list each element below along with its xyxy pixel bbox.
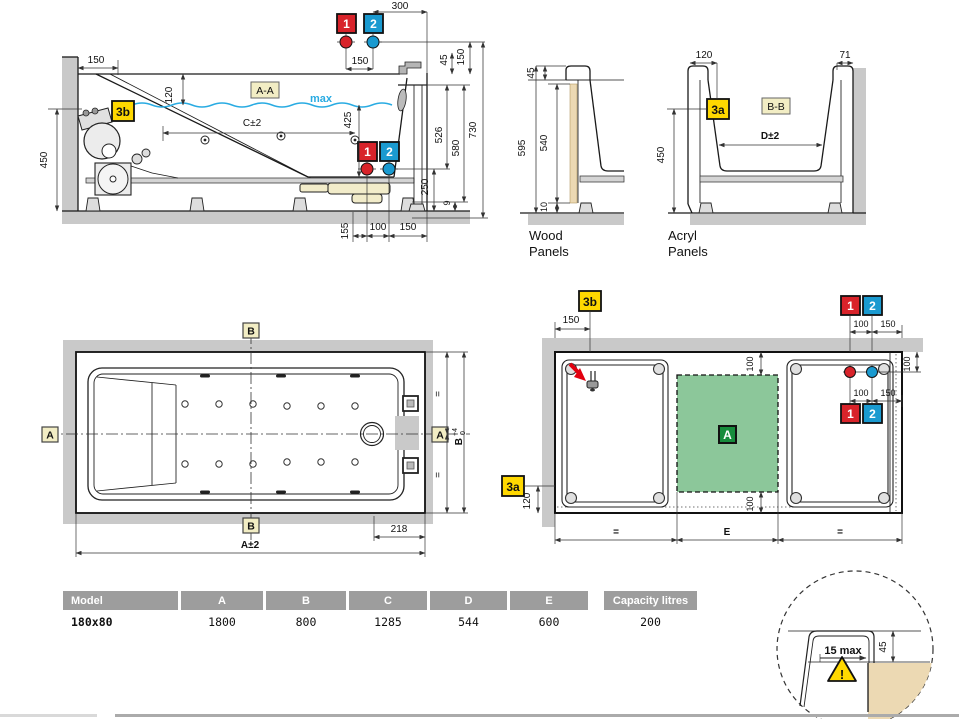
tub-plan-view: B B A A 218 A±2 = = B +4 0: [42, 323, 470, 557]
dim-10: 10: [539, 202, 549, 212]
section-aa-view: max A-A 3b 1 2 1 2 150 120 C±2: [39, 1, 488, 242]
marker-3b-install: 3b: [583, 295, 597, 309]
dim-150-supply-top: 150: [352, 56, 369, 67]
dim-150-install-1: 150: [880, 319, 895, 329]
dim-450-acryl: 450: [656, 146, 667, 163]
value-model: 180x80: [63, 610, 178, 634]
wood-panel-strip: [570, 84, 577, 203]
header-c: C: [349, 591, 427, 610]
dim-150-right: 150: [456, 48, 467, 65]
spec-table: Model A B C D E Capacity litres 180x80 1…: [63, 591, 703, 634]
dim-9: 9: [442, 200, 452, 205]
dim-100-green-top: 100: [745, 356, 755, 371]
dim-120-acryl: 120: [696, 50, 713, 61]
wall-right: [853, 68, 866, 225]
footer-strip-left: [0, 714, 97, 717]
drain-plug-icon: [587, 381, 598, 388]
technical-drawing-page: max A-A 3b 1 2 1 2 150 120 C±2: [0, 0, 959, 719]
svg-text:0: 0: [460, 431, 467, 435]
marker-3a-acryl: 3a: [711, 103, 725, 117]
value-d: 544: [430, 610, 507, 634]
dim-100-green-bottom: 100: [745, 496, 755, 511]
value-a: 1800: [181, 610, 263, 634]
dim-450-left: 450: [39, 151, 50, 168]
dim-equal-left: =: [613, 527, 619, 538]
marker-3a-install: 3a: [506, 480, 520, 494]
header-model: Model: [63, 591, 178, 610]
value-capacity: 200: [604, 610, 697, 634]
dim-45-wood: 45: [526, 67, 537, 79]
acryl-panels-view: B-B 3a 120 71 D±2 450 Acryl Panels: [656, 50, 866, 259]
header-e: E: [510, 591, 588, 610]
supply-point-symbols-top: [337, 34, 382, 50]
marker-a-area: A: [723, 428, 732, 442]
install-wall-top: [542, 338, 923, 352]
dim-100-right: 100: [902, 356, 912, 371]
header-a: A: [181, 591, 263, 610]
dim-300: 300: [392, 1, 409, 12]
drain-siphon: [300, 183, 390, 203]
wall-ledge: [868, 663, 934, 719]
wood-panels-title-1: Wood: [529, 228, 563, 243]
rim-detail-view: 15 max ! 45: [777, 571, 934, 719]
dim-150-bottom: 150: [400, 222, 417, 233]
wood-panels-view: 45 595 540 10 Wood Panels: [517, 66, 624, 259]
warning-exclamation: !: [840, 667, 844, 682]
marker-1-top: 1: [343, 17, 350, 31]
header-d: D: [430, 591, 507, 610]
value-c: 1285: [349, 610, 427, 634]
wood-panel-dimensions: 45 595 540 10: [517, 66, 570, 213]
marker-b-top: B: [247, 326, 255, 338]
acryl-panels-title-2: Panels: [668, 244, 708, 259]
dim-c: C±2: [243, 118, 262, 129]
value-b: 800: [266, 610, 346, 634]
marker-1-install-mid: 1: [847, 407, 854, 421]
header-capacity: Capacity litres: [604, 591, 697, 610]
dim-equal-top: =: [433, 391, 444, 397]
marker-b-bottom: B: [247, 521, 255, 533]
spec-table-header-row: Model A B C D E Capacity litres: [63, 591, 703, 610]
dim-equal-bottom: =: [433, 472, 444, 478]
marker-2-mid: 2: [386, 145, 393, 159]
dim-150-install-top: 150: [563, 315, 580, 326]
support-rail: [86, 178, 414, 183]
marker-3b: 3b: [116, 105, 130, 119]
supply-point-symbols-mid: [358, 161, 398, 177]
max-water-label: max: [310, 93, 333, 105]
dim-a: A±2: [241, 540, 260, 551]
deck-pad: [395, 416, 419, 450]
installation-plan-view: A 3b 150 3a 120 1 2 100 150 100 150: [502, 291, 923, 544]
dim-150-wall: 150: [88, 55, 105, 66]
marker-2-install-top: 2: [869, 299, 876, 313]
install-wall-left: [542, 352, 555, 527]
dim-15max: 15 max: [824, 645, 862, 657]
dim-580: 580: [451, 139, 462, 156]
acryl-panel-dimensions: 120 71 D±2 450: [656, 50, 853, 213]
header-b: B: [266, 591, 346, 610]
dim-120: 120: [164, 86, 175, 103]
marker-2-install-mid: 2: [869, 407, 876, 421]
wood-panels-title-2: Panels: [529, 244, 569, 259]
footer-strip-right: [115, 714, 959, 717]
marker-a-left: A: [46, 430, 54, 442]
dim-d: D±2: [761, 131, 780, 142]
dim-e: E: [724, 527, 731, 538]
faucet-spout: [399, 62, 421, 74]
dim-425: 425: [343, 111, 354, 128]
spec-table-value-row: 180x80 1800 800 1285 544 600 200: [63, 610, 703, 634]
dim-45: 45: [439, 54, 450, 66]
dim-45-detail: 45: [878, 641, 889, 653]
dim-100-install-2: 100: [853, 388, 868, 398]
acryl-panels-title-1: Acryl: [668, 228, 697, 243]
marker-1-install-top: 1: [847, 299, 854, 313]
dim-540: 540: [539, 134, 550, 151]
dim-155: 155: [340, 222, 351, 239]
dim-218: 218: [391, 524, 408, 535]
marker-1-mid: 1: [364, 145, 371, 159]
svg-text:B: B: [454, 438, 465, 445]
marker-a-right: A: [436, 430, 444, 442]
dim-100-bottom: 100: [370, 222, 387, 233]
section-aa-label: A-A: [256, 85, 274, 97]
dim-71: 71: [839, 50, 851, 61]
dim-150-install-2: 150: [880, 388, 895, 398]
marker-2-top: 2: [370, 17, 377, 31]
dim-526: 526: [434, 126, 445, 143]
dim-730: 730: [468, 121, 479, 138]
dim-595: 595: [517, 139, 528, 156]
wall-left: [62, 57, 78, 211]
dim-100-install-1: 100: [853, 319, 868, 329]
dim-120-install: 120: [522, 492, 533, 509]
overflow-cover: [397, 89, 408, 112]
dim-250: 250: [420, 178, 431, 195]
dim-b-tolerance: B +4 0: [452, 428, 467, 445]
section-bb-label: B-B: [767, 101, 785, 113]
svg-text:+4: +4: [452, 428, 459, 436]
dim-equal-right: =: [837, 527, 843, 538]
value-e: 600: [510, 610, 588, 634]
